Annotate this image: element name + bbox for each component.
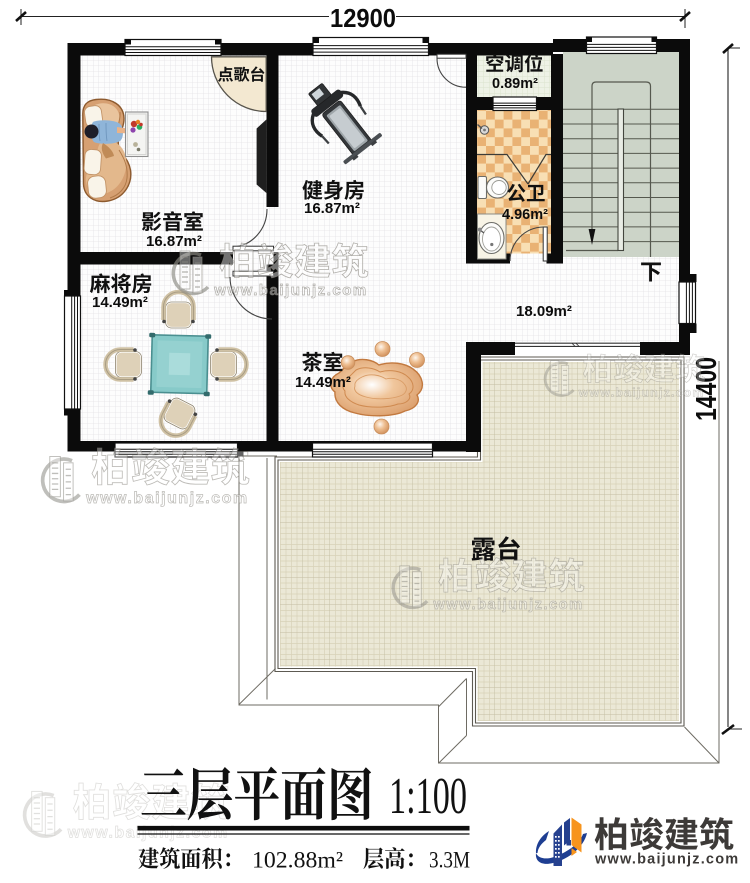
svg-text:www.baijunjz.com: www.baijunjz.com — [594, 852, 739, 868]
svg-text:14.49m²: 14.49m² — [92, 294, 148, 311]
svg-text:102.88m²: 102.88m² — [252, 848, 343, 873]
svg-text:1:100: 1:100 — [389, 768, 467, 825]
svg-text:16.87m²: 16.87m² — [146, 233, 202, 250]
svg-text:16.87m²: 16.87m² — [304, 200, 360, 217]
svg-text:12900: 12900 — [330, 3, 396, 33]
svg-text:4.96m²: 4.96m² — [502, 207, 548, 223]
svg-text:18.09m²: 18.09m² — [516, 303, 572, 320]
svg-text:0.89m²: 0.89m² — [492, 76, 538, 92]
svg-text:14.49m²: 14.49m² — [295, 374, 351, 391]
svg-text:3.3M: 3.3M — [429, 848, 470, 873]
